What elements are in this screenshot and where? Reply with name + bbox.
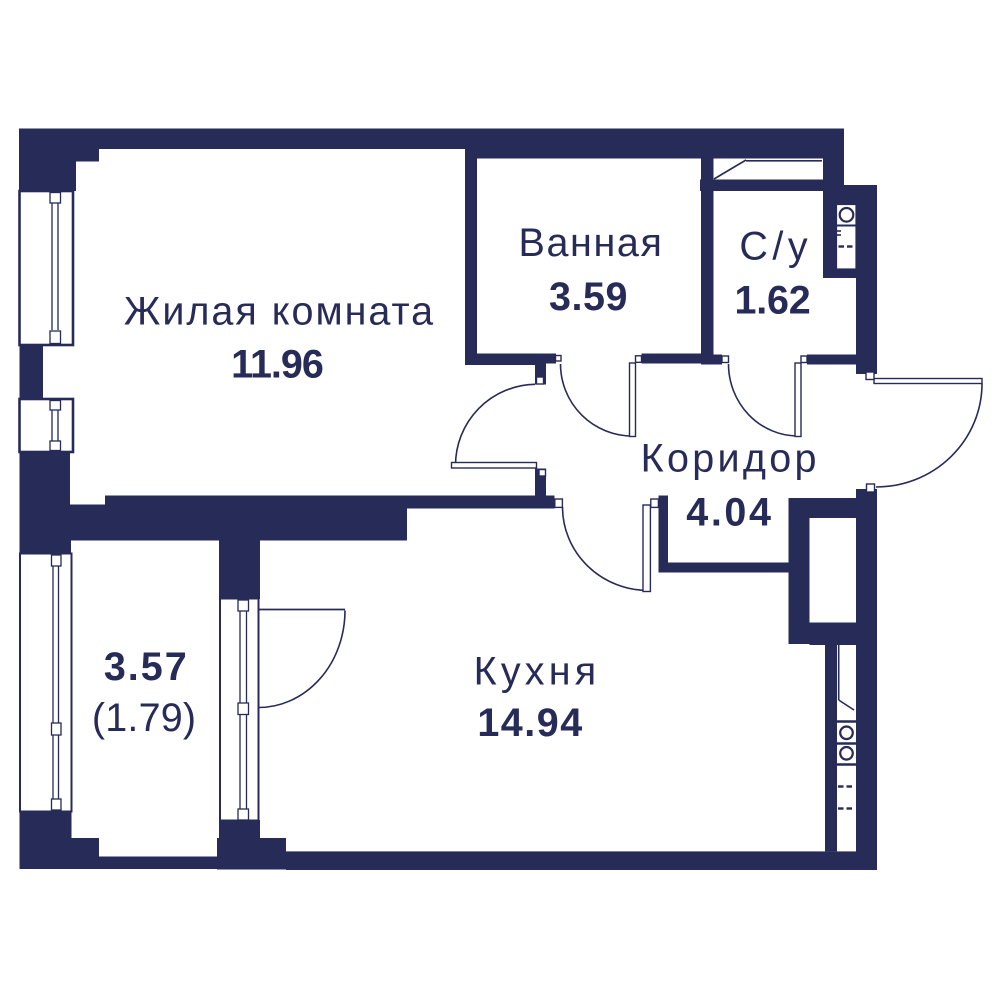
svg-text:(1.79): (1.79) <box>92 696 196 740</box>
svg-text:14.94: 14.94 <box>477 701 583 745</box>
svg-text:Жилая комната: Жилая комната <box>124 289 435 333</box>
svg-text:Кухня: Кухня <box>474 649 601 693</box>
svg-text:1.62: 1.62 <box>734 279 810 323</box>
svg-text:3.59: 3.59 <box>549 275 628 319</box>
svg-text:Коридор: Коридор <box>641 437 820 481</box>
svg-text:С/у: С/у <box>739 225 812 269</box>
svg-text:Ванная: Ванная <box>519 221 664 265</box>
svg-text:4.04: 4.04 <box>686 490 773 534</box>
svg-text:3.57: 3.57 <box>104 645 189 689</box>
svg-text:11.96: 11.96 <box>231 343 323 387</box>
